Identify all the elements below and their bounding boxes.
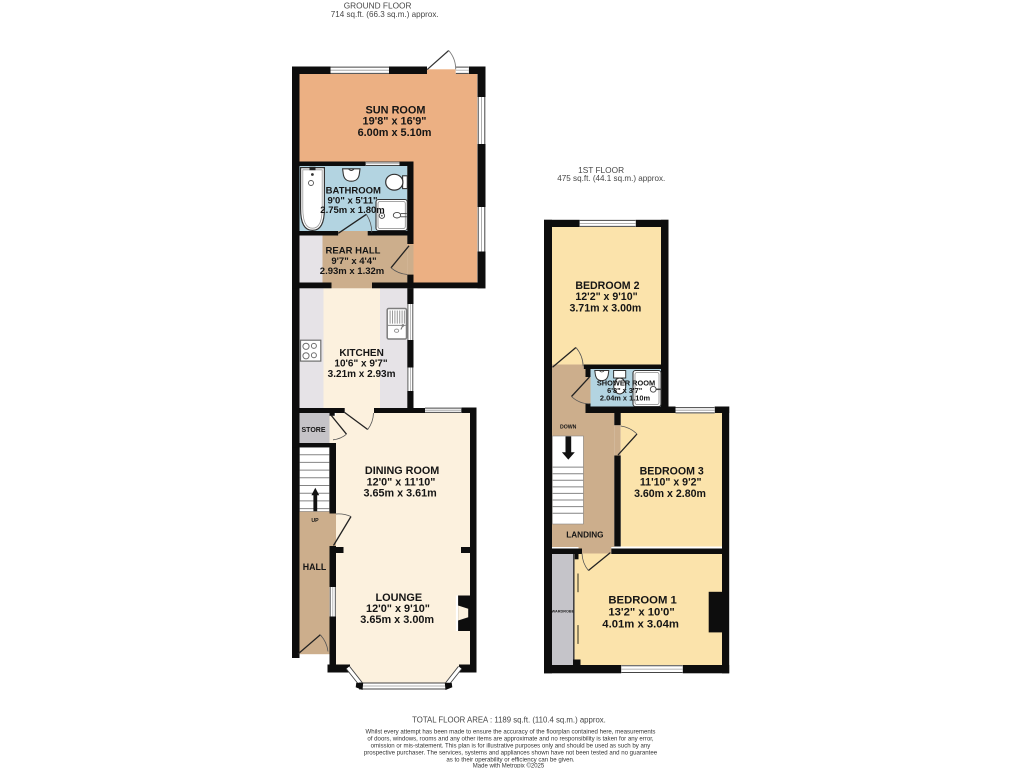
svg-text:2.75m x 1.80m: 2.75m x 1.80m — [320, 205, 384, 216]
svg-text:of doors, windows, rooms and a: of doors, windows, rooms and any other i… — [367, 735, 654, 742]
svg-text:10'6" x 9'7": 10'6" x 9'7" — [334, 359, 387, 370]
svg-text:3.65m x 3.00m: 3.65m x 3.00m — [360, 614, 434, 626]
svg-text:6.00m x 5.10m: 6.00m x 5.10m — [358, 127, 432, 139]
svg-text:LANDING: LANDING — [566, 530, 603, 539]
svg-text:Whilst every attempt has been: Whilst every attempt has been made to en… — [366, 728, 656, 735]
svg-text:HALL: HALL — [303, 562, 327, 572]
svg-text:DINING ROOM: DINING ROOM — [365, 465, 439, 477]
svg-text:UP: UP — [311, 518, 319, 524]
svg-text:WARDROBE: WARDROBE — [552, 610, 575, 614]
svg-text:omission or mis-statement. Thi: omission or mis-statement. This plan is … — [371, 742, 652, 749]
svg-text:SUN ROOM: SUN ROOM — [366, 104, 426, 116]
svg-text:3.60m x 2.80m: 3.60m x 2.80m — [634, 488, 706, 500]
svg-text:BEDROOM 1: BEDROOM 1 — [608, 594, 676, 606]
svg-text:2.04m x 1.10m: 2.04m x 1.10m — [600, 393, 651, 402]
svg-text:11'10" x 9'2": 11'10" x 9'2" — [640, 477, 702, 489]
svg-text:Made with Metropix ©2025: Made with Metropix ©2025 — [473, 762, 545, 768]
svg-text:REAR HALL: REAR HALL — [326, 245, 381, 256]
svg-text:4.01m x 3.04m: 4.01m x 3.04m — [602, 619, 679, 631]
svg-text:3.65m x 3.61m: 3.65m x 3.61m — [363, 488, 436, 500]
svg-text:2.93m x 1.32m: 2.93m x 1.32m — [320, 266, 384, 277]
svg-text:3.71m x 3.00m: 3.71m x 3.00m — [569, 302, 641, 314]
svg-text:12'0" x 11'10": 12'0" x 11'10" — [367, 476, 436, 488]
svg-text:prospective purchaser. The ser: prospective purchaser. The services, sys… — [364, 749, 658, 756]
svg-text:13'2" x 10'0": 13'2" x 10'0" — [608, 606, 674, 618]
svg-text:714 sq.ft. (66.3 sq.m.) approx: 714 sq.ft. (66.3 sq.m.) approx. — [331, 10, 439, 19]
svg-text:KITCHEN: KITCHEN — [339, 348, 383, 359]
svg-text:BEDROOM 3: BEDROOM 3 — [640, 466, 704, 478]
svg-text:TOTAL FLOOR AREA : 1189 sq.ft.: TOTAL FLOOR AREA : 1189 sq.ft. (110.4 sq… — [412, 716, 606, 725]
svg-text:475 sq.ft. (44.1 sq.m.) approx: 475 sq.ft. (44.1 sq.m.) approx. — [557, 174, 665, 183]
svg-text:DOWN: DOWN — [560, 425, 577, 431]
svg-text:BEDROOM 2: BEDROOM 2 — [575, 280, 639, 292]
svg-text:19'8" x 16'9": 19'8" x 16'9" — [363, 116, 427, 128]
svg-text:3.21m x 2.93m: 3.21m x 2.93m — [328, 369, 396, 380]
svg-text:STORE: STORE — [302, 427, 326, 434]
